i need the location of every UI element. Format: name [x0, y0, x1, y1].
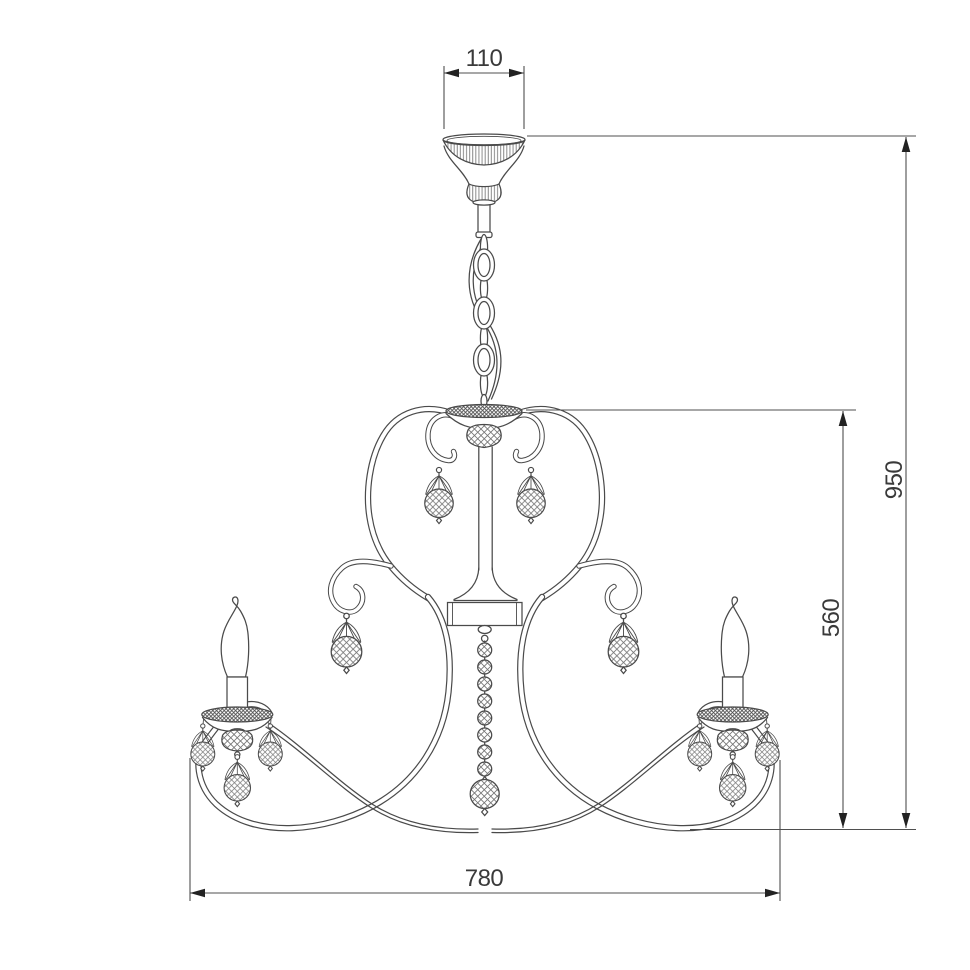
arrowhead-left	[444, 69, 459, 78]
hanging-chain	[469, 235, 501, 408]
chandelier-diagram: 110 950 560 780	[0, 0, 970, 970]
dimension-label-body-height: 560	[818, 599, 845, 638]
top-plate	[446, 405, 522, 418]
ceiling-canopy	[443, 134, 525, 238]
arrowhead-bottom	[902, 813, 911, 828]
crystal-bead	[478, 643, 492, 657]
dim-body-height: 560	[526, 410, 856, 828]
arrowhead-top	[839, 411, 848, 426]
dimension-label-overall-height: 950	[881, 461, 908, 500]
chandelier-art	[191, 134, 779, 833]
technical-drawing: 110 950 560 780	[0, 0, 970, 970]
crystal-bead	[478, 762, 492, 776]
arrowhead-right	[509, 69, 524, 78]
crystal-bead	[478, 728, 492, 742]
arrowhead-left	[190, 889, 205, 898]
arrowhead-right	[765, 889, 780, 898]
column-shaft	[479, 447, 492, 570]
dim-canopy-width: 110	[444, 45, 524, 129]
top-bobeche	[446, 405, 522, 448]
column-base-plate	[448, 603, 523, 626]
center-bead-chain	[470, 641, 499, 816]
dimension-label-body-width: 780	[465, 865, 504, 892]
dimension-label-canopy-width: 110	[466, 45, 503, 72]
crystal-collar-bead	[467, 425, 501, 448]
canopy-stem	[478, 205, 490, 232]
crystal-bead	[478, 660, 492, 674]
crystal-bead	[478, 694, 492, 708]
arrowhead-top	[902, 137, 911, 152]
center-crystal-ball	[470, 780, 499, 809]
center-column	[448, 447, 523, 642]
crystal-bead	[478, 711, 492, 725]
left-arm-assembly	[191, 409, 478, 833]
crystal-bead	[478, 745, 492, 759]
right-arm-assembly	[492, 409, 779, 833]
crystal-bead	[478, 677, 492, 691]
arrowhead-bottom	[839, 813, 848, 828]
